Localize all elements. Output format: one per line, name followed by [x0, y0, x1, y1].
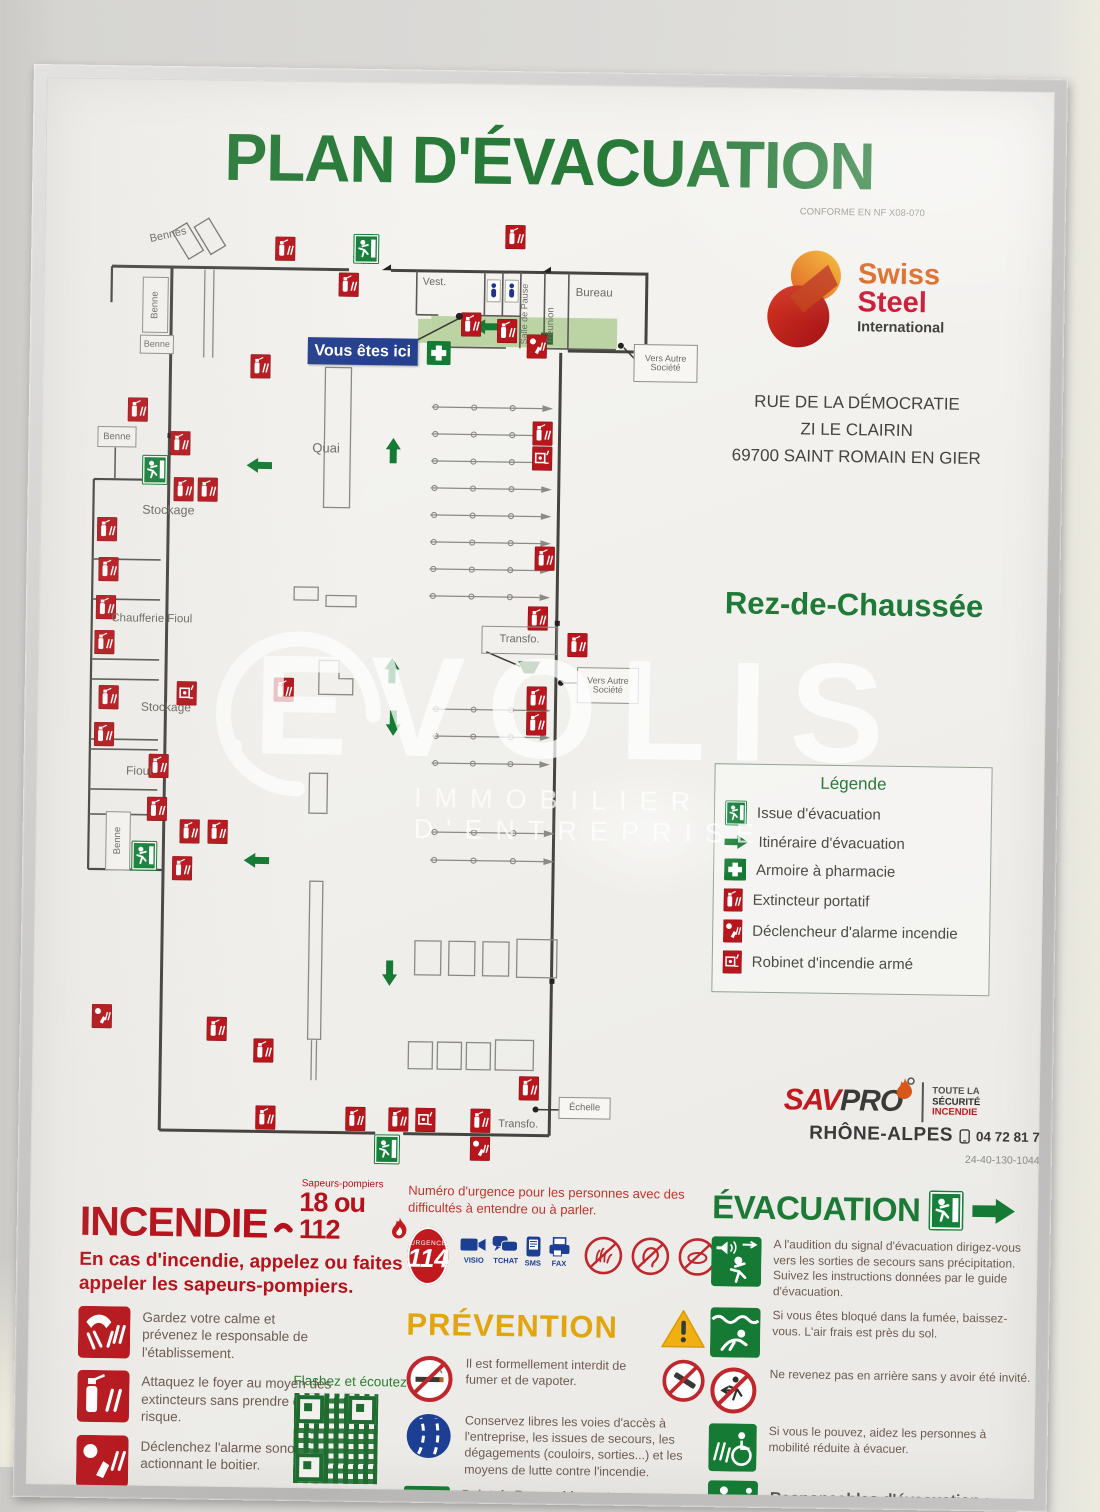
company-name-2: Steel — [857, 289, 944, 318]
evacuation-plan-poster: PLAN D'ÉVACUATION CONFORME EN NF X08-070 — [26, 77, 1055, 1499]
extinguisher-icon — [526, 711, 546, 735]
evac-arrow-icon — [244, 853, 270, 868]
sms-icon — [526, 1236, 540, 1256]
alarm-icon — [723, 919, 742, 942]
phone-icon — [959, 1128, 970, 1143]
sign-language-icon — [583, 1235, 624, 1276]
alarm-icon — [92, 1004, 112, 1028]
provider-pro: PRO — [840, 1084, 903, 1119]
label-benne: Benne — [142, 277, 169, 333]
phone-fire-icon — [78, 1305, 131, 1358]
responsables-label: Responsables d'évacuation : — [770, 1489, 1030, 1499]
extinguisher-icon — [94, 722, 114, 746]
exit-icon — [353, 234, 379, 264]
extinguisher-icon — [526, 686, 546, 710]
evacuation-title: ÉVACUATION — [712, 1188, 921, 1229]
company-name-3: International — [857, 319, 944, 336]
extinguisher-icon — [505, 225, 525, 249]
extinguisher-icon — [567, 633, 587, 657]
extinguisher-icon — [170, 431, 190, 455]
exit-icon — [131, 841, 157, 871]
page-title: PLAN D'ÉVACUATION — [45, 116, 1054, 208]
company-address: RUE DE LA DÉMOCRATIE ZI LE CLAIRIN 69700… — [696, 387, 1017, 473]
evacuation-item: Ne revenez pas en arrière sans y avoir é… — [709, 1367, 1032, 1420]
label-stockage: Stockage — [118, 700, 213, 715]
emergency-numbers: 18 ou 112 — [299, 1189, 386, 1244]
legend-row: Issue d'évacuation — [725, 800, 981, 829]
extinguisher-icon — [94, 630, 114, 654]
extinguisher-icon — [174, 477, 194, 501]
prevention-item: Il est formellement interdit de fumer et… — [405, 1354, 706, 1406]
urgence-prevention-section: Numéro d'urgence pour les personnes avec… — [403, 1183, 708, 1499]
evac-arrow-icon — [972, 1196, 1016, 1227]
disability-icons — [583, 1235, 718, 1277]
label-echelle: Échelle — [558, 1097, 610, 1120]
evac-arrow-icon — [382, 960, 397, 986]
extinguisher-icon — [98, 557, 118, 581]
label-stockage: Stockage — [113, 503, 223, 518]
smoke-crouch-icon — [710, 1308, 761, 1359]
evac-arrow-icon — [384, 658, 399, 684]
extinguisher-icon — [207, 820, 227, 844]
label-vers-autre-societe: Vers Autre Société — [633, 344, 698, 383]
wc-icon — [505, 280, 518, 302]
alarm-button-icon — [76, 1435, 129, 1488]
extinguisher-icon — [198, 477, 218, 501]
legend-row: Armoire à pharmacie — [724, 858, 980, 884]
extinguisher-icon — [497, 319, 517, 343]
no-smoking-icon — [405, 1354, 454, 1403]
flame-icon — [894, 1077, 916, 1101]
floor-title: Rez-de-Chaussée — [694, 585, 1014, 626]
tchat-icon — [493, 1236, 519, 1254]
label-chaufferie: Chaufferie Fioul — [102, 612, 202, 626]
qr-code — [293, 1393, 378, 1484]
extinguisher-fire-icon — [77, 1370, 130, 1423]
urgence-channels: VISIO TCHAT SMS FAX — [461, 1235, 572, 1268]
provider-region: RHÔNE-ALPES — [809, 1123, 953, 1147]
extinguisher-icon — [461, 312, 481, 336]
label-transfo: Transfo. — [481, 626, 557, 655]
company-logo-block: Swiss Steel International — [765, 248, 946, 355]
provider-phone: 04 72 81 71 71 — [976, 1129, 1055, 1145]
provider-block: SAVPRO TOUTE LA SÉCURITÉ INCENDIE RHÔNE-… — [783, 1080, 1055, 1186]
extinguisher-icon — [207, 1017, 227, 1041]
extinguisher-icon — [535, 546, 555, 570]
exit-icon — [374, 1134, 400, 1164]
pharmacy-icon — [427, 341, 451, 365]
floor-plan: Bennes Benne Benne Benne Benne Stockage … — [74, 214, 713, 1173]
you-are-here-badge: Vous êtes ici — [308, 337, 418, 366]
prevention-title: PRÉVENTION — [406, 1307, 618, 1346]
extinguisher-icon — [532, 421, 552, 445]
rassemblement-label: Point de Rassemblement : — [462, 1486, 704, 1499]
warning-triangle-icon — [660, 1308, 707, 1350]
extinguisher-icon — [98, 685, 118, 709]
label-quai: Quai — [312, 441, 340, 456]
deaf-icon — [630, 1236, 671, 1277]
extinguisher-icon — [253, 1038, 273, 1062]
assembly-point-icon — [403, 1485, 450, 1499]
evac-arrow-icon — [386, 710, 401, 736]
evacuation-item: Responsables d'évacuation : — [707, 1481, 1030, 1499]
evacuation-guide-icon — [707, 1481, 758, 1499]
urgence-text: Numéro d'urgence pour les personnes avec… — [408, 1183, 708, 1221]
extinguisher-icon — [470, 1109, 490, 1133]
extinguisher-icon — [172, 856, 192, 880]
ria-icon — [415, 1108, 435, 1132]
prevention-item: Conservez libres les voies d'accès à l'e… — [404, 1411, 705, 1480]
alarm-icon — [470, 1137, 490, 1161]
ria-icon — [723, 950, 742, 973]
alarm-signal-evacuate-icon — [711, 1236, 762, 1287]
label-transfo: Transfo. — [498, 1118, 538, 1131]
legend-row: Itinéraire d'évacuation — [724, 833, 980, 854]
extinguisher-icon — [147, 797, 167, 821]
label-vers-autre-societe: Vers Autre Société — [577, 667, 640, 704]
label-reunion: Réunion — [546, 277, 557, 343]
keep-clear-road-icon — [404, 1411, 453, 1460]
extinguisher-icon — [345, 1107, 365, 1131]
label-benne: Benne — [105, 811, 131, 870]
extinguisher-icon — [255, 1105, 275, 1129]
label-salle-de-pause: Salle de Pause — [520, 274, 531, 344]
evacuation-section: ÉVACUATION A l'audition du signal d'évac… — [707, 1187, 1034, 1499]
extinguisher-icon — [275, 237, 295, 261]
poster-frame: PLAN D'ÉVACUATION CONFORME EN NF X08-070 — [13, 64, 1068, 1512]
evac-arrow-icon — [246, 458, 272, 473]
ria-icon — [532, 446, 552, 470]
incendie-intro: En cas d'incendie, appelez ou faites app… — [79, 1248, 410, 1300]
evacuation-item: A l'audition du signal d'évacuation diri… — [711, 1236, 1034, 1303]
incendie-step: Gardez votre calme et prévenez le respon… — [78, 1305, 409, 1365]
exit-icon — [142, 455, 168, 485]
rassemblement-item: Point de Rassemblement : — [403, 1485, 704, 1499]
no-return-icon — [709, 1367, 758, 1416]
evacuation-item: Si vous êtes bloqué dans la fumée, baiss… — [710, 1308, 1033, 1363]
qr-label: Flashez et écoutez — [293, 1373, 407, 1390]
exit-icon — [725, 800, 747, 825]
label-benne: Benne — [97, 426, 136, 448]
evac-arrow-icon — [386, 438, 401, 464]
legend-row: Robinet d'incendie armé — [723, 950, 979, 977]
fax-icon — [547, 1237, 571, 1257]
legend-row: Déclencheur d'alarme incendie — [723, 919, 979, 946]
extinguisher-icon — [388, 1107, 408, 1131]
no-vaping-icon — [661, 1358, 706, 1403]
badge-114: URGENCE 114 — [407, 1226, 449, 1285]
incendie-title: INCENDIE — [80, 1203, 268, 1243]
evacuation-item: Si vous le pouvez, aidez les personnes à… — [708, 1424, 1031, 1477]
legend: Légende Issue d'évacuation Itinéraire d'… — [711, 763, 992, 996]
legend-title: Légende — [725, 772, 981, 796]
evac-arrow-icon — [724, 833, 748, 850]
pharmacy-icon — [724, 858, 746, 880]
label-vest: Vest. — [423, 277, 447, 289]
assist-pmr-icon — [708, 1424, 757, 1473]
extinguisher-icon — [274, 678, 294, 702]
extinguisher-icon — [519, 1076, 539, 1100]
label-benne: Benne — [140, 335, 174, 355]
phone-handset-icon — [272, 1217, 294, 1243]
extinguisher-icon — [339, 273, 359, 297]
extinguisher-icon — [97, 517, 117, 541]
exit-icon — [928, 1190, 965, 1231]
extinguisher-icon — [128, 397, 148, 421]
legend-row: Extincteur portatif — [724, 888, 980, 915]
swiss-steel-logo-icon — [765, 248, 849, 353]
label-bureau: Bureau — [576, 287, 613, 300]
extinguisher-icon — [179, 819, 199, 843]
extinguisher-icon — [250, 354, 270, 378]
extinguisher-icon — [724, 888, 743, 911]
label-fioul: Fioul — [101, 764, 176, 778]
provider-sav: SAV — [783, 1083, 840, 1118]
conformity-note: CONFORME EN NF X08-070 — [735, 205, 925, 219]
wc-icon — [487, 280, 500, 302]
visio-icon — [461, 1235, 487, 1253]
